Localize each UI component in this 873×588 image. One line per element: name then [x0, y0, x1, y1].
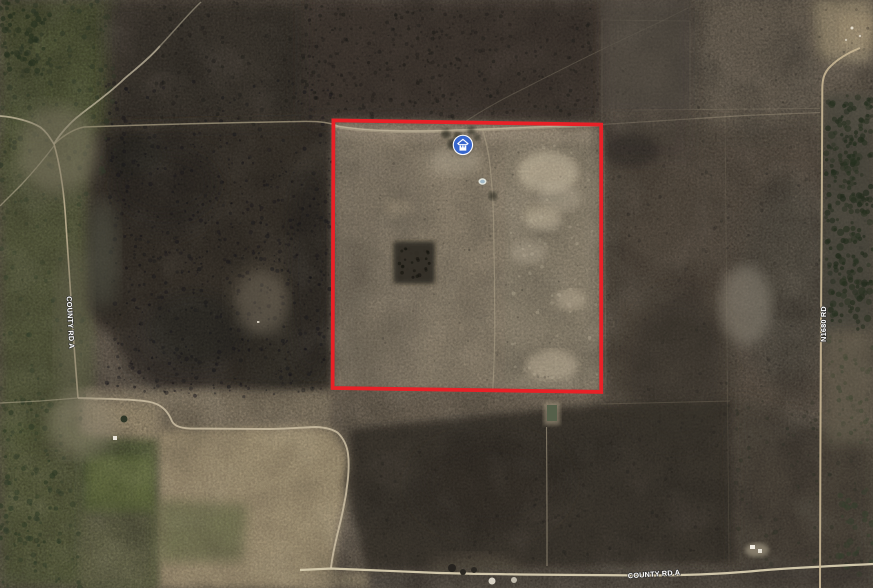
svg-text:N1680 RD: N1680 RD	[819, 306, 828, 342]
